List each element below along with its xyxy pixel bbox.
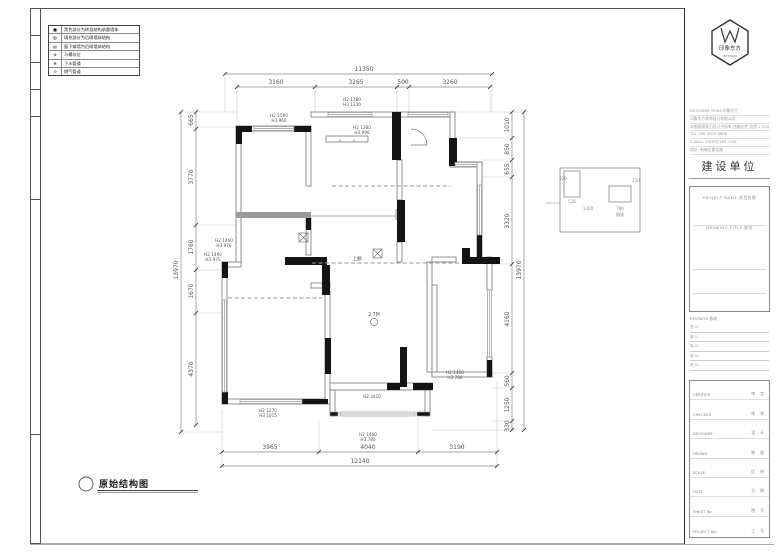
- drawing-caption: 原始结构图: [99, 477, 149, 490]
- legend-label: 黑色部分为砖混结构承重墙体: [62, 26, 139, 33]
- signature-row: VERIFIER 审 定: [690, 381, 769, 400]
- binding-cell: [31, 9, 40, 36]
- legend-row: ✻ 下水管道: [49, 59, 139, 67]
- legend-label: 燃气管道: [62, 68, 139, 75]
- svg-text:1300: 1300: [583, 206, 594, 211]
- legend-label: 填充部分为后砌墙体结构: [62, 34, 139, 41]
- dim-label: 1250: [504, 397, 511, 412]
- beam-lines: [228, 186, 460, 298]
- binding-cell: [31, 90, 40, 117]
- signature-row: CHECKED 审 核: [690, 400, 769, 419]
- company-info-line: 本图纸版权归设计方所有 违者必究 比例 1:100: [690, 124, 770, 132]
- signature-row: DRAWN 制 图: [690, 439, 769, 458]
- legend-symbol: ⊙: [49, 68, 62, 75]
- svg-text:H3 1130: H3 1130: [343, 102, 361, 107]
- company-info-line: DESIGNER TEAM 印象东方: [690, 108, 770, 116]
- balcony-beam-label: H2 2410: [363, 394, 381, 399]
- level-marker: [371, 319, 378, 326]
- dim-label: 12140: [350, 458, 369, 465]
- signature-row: PROJECT No. 工 号: [690, 517, 769, 536]
- infill-wall: [236, 212, 396, 218]
- revision-row: 图-02: [690, 333, 769, 343]
- divider: [689, 178, 770, 179]
- signature-row: DATE 日 期: [690, 478, 769, 497]
- dim-label: 3320: [504, 213, 511, 228]
- signature-box: VERIFIER 审 定 CHECKED 审 核 DESIGNER 设 计 DR…: [689, 380, 770, 538]
- binding-mark: [31, 434, 40, 435]
- revision-label: REVISION 修改: [690, 316, 717, 322]
- company-info-line: 地址: 新城区建设路: [690, 147, 770, 155]
- dim-label: 13970: [173, 260, 180, 279]
- dim-label: 3190: [449, 444, 464, 451]
- caption-underline: [97, 490, 198, 491]
- logo-name: 印象东方: [718, 44, 741, 52]
- svg-text:320: 320: [559, 176, 567, 181]
- room-height-marker: 2.7M: [368, 312, 380, 318]
- dim-label: 1760: [188, 239, 195, 254]
- company-logo: 印象东方 INTERIOR: [685, 18, 774, 72]
- revision-rows: 图-01 图-02 图-03 图-04 图-05: [690, 323, 769, 371]
- svg-text:H3 780: H3 780: [360, 437, 375, 442]
- dim-label: 655: [504, 163, 511, 175]
- project-box: PROJECT NAME 项目名称 DRAWING TITLE 图名: [689, 186, 770, 312]
- legend-row: ⊕ 马桶坑位: [49, 50, 139, 58]
- project-name-label: PROJECT NAME 项目名称: [690, 195, 769, 201]
- legend-label: 马桶坑位: [62, 51, 139, 58]
- legend-symbol: ⊕: [49, 51, 62, 58]
- legend-symbol: ▨: [49, 34, 62, 41]
- revision-row: 图-04: [690, 352, 769, 362]
- binding-cell: [31, 36, 40, 63]
- dimension-lines: [179, 72, 526, 468]
- logo-sub: INTERIOR: [722, 54, 736, 58]
- dim-label: 3260: [442, 79, 457, 86]
- legend-label: 窗下矮墙为后砌墙体结构: [62, 43, 139, 50]
- binding-cell: [31, 63, 40, 90]
- dim-label: 1010: [504, 117, 511, 132]
- sheet-frame: [31, 9, 774, 545]
- svg-text:528: 528: [568, 199, 576, 204]
- legend-symbol: ▤: [49, 43, 62, 50]
- binding-mark: [31, 199, 40, 434]
- svg-text:H3 990: H3 990: [354, 130, 369, 135]
- legend-row: ▤ 窗下矮墙为后砌墙体结构: [49, 42, 139, 50]
- legend-row: ⊙ 燃气管道: [49, 67, 139, 75]
- svg-text:烟道: 烟道: [616, 211, 624, 217]
- dim-label: 665: [188, 114, 195, 126]
- company-info-line: E-MAIL: YXDF@163.COM: [690, 139, 770, 147]
- dim-label: 3160: [268, 79, 283, 86]
- legend-label: 下水管道: [62, 60, 139, 67]
- legend-row: ▨ 填充部分为后砌墙体结构: [49, 33, 139, 41]
- revision-row: 图-03: [690, 342, 769, 352]
- dim-label: 330: [504, 420, 511, 432]
- legend-table: ■ 黑色部分为砖混结构承重墙体 ▨ 填充部分为后砌墙体结构 ▤ 窗下矮墙为后砌墙…: [48, 25, 140, 76]
- hexagon-logo-icon: 印象东方 INTERIOR: [708, 18, 752, 68]
- revision-row: 图-05: [690, 361, 769, 371]
- svg-text:H3 1015: H3 1015: [259, 413, 277, 418]
- caption-symbol: [79, 477, 93, 491]
- dim-label: 3770: [188, 169, 195, 184]
- binding-strip: [30, 8, 41, 544]
- dim-label: 4160: [504, 311, 511, 326]
- svg-text:H3 970: H3 970: [216, 243, 231, 248]
- dim-label: 560: [504, 375, 511, 387]
- dim-label: 4370: [188, 361, 195, 376]
- construction-unit-label: 建设单位: [685, 158, 774, 174]
- caption-underline-thin: [97, 492, 198, 493]
- svg-text:H3 975: H3 975: [205, 257, 220, 262]
- signature-row: SCALE 比 例: [690, 459, 769, 478]
- drawing-sheet: { "sheet": { "caption": "原始结构图" }, "lege…: [0, 0, 780, 552]
- company-info-line: 印象东方装饰设计有限公司: [690, 116, 770, 124]
- dim-label: 500: [397, 79, 409, 86]
- revision-row: 图-01: [690, 323, 769, 333]
- legend-symbol: ✻: [49, 60, 62, 67]
- beam-label: 上翻: [353, 255, 362, 262]
- title-block-panel: 印象东方 INTERIOR DESIGNER TEAM 印象东方 印象东方装饰设…: [684, 8, 774, 544]
- dim-label: 11350: [354, 66, 373, 73]
- dim-label: 3265: [348, 79, 363, 86]
- company-info-line: TEL:186 0000 8888: [690, 131, 770, 139]
- door-arc: [411, 129, 427, 145]
- floor-plan-canvas: 11350 3160 3265 500 3260 3965 4040 3190 …: [0, 0, 780, 552]
- signature-row: DESIGNER 设 计: [690, 420, 769, 439]
- dim-label: 1670: [188, 283, 195, 298]
- extension-lines: [183, 77, 522, 466]
- detail-box-labels: 320 528 250 1300 780 烟道: [559, 176, 640, 217]
- svg-text:H3 960: H3 960: [271, 118, 286, 123]
- dim-label: 850: [504, 143, 511, 155]
- dim-label: 4040: [360, 444, 375, 451]
- signature-row: SHEET No. 图 号: [690, 497, 769, 516]
- legend-symbol: ■: [49, 26, 62, 33]
- dim-label: 3965: [262, 444, 277, 451]
- svg-text:250: 250: [632, 178, 640, 183]
- dim-label: 13970: [516, 260, 523, 279]
- svg-text:H3 780: H3 780: [447, 375, 462, 380]
- legend-row: ■ 黑色部分为砖混结构承重墙体: [49, 26, 139, 33]
- svg-text:780: 780: [616, 206, 624, 211]
- company-info: DESIGNER TEAM 印象东方 印象东方装饰设计有限公司 本图纸版权归设计…: [690, 108, 770, 155]
